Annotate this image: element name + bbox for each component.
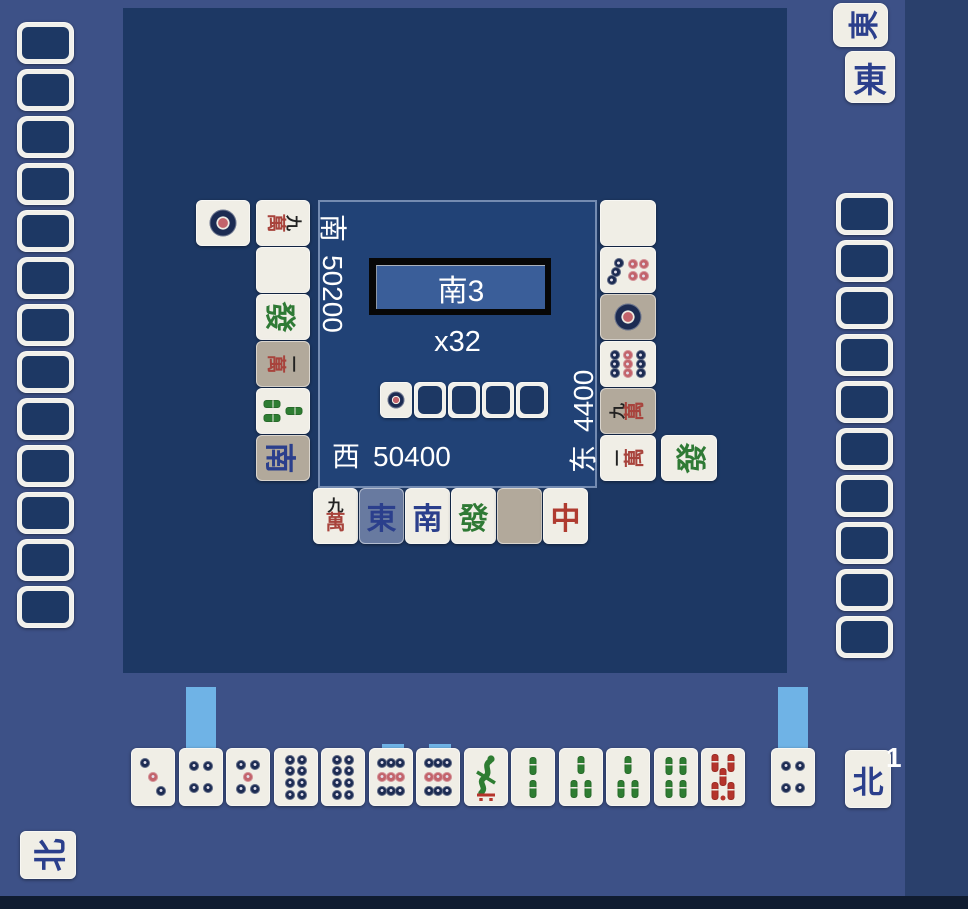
tile-face: 九萬 xyxy=(317,492,354,540)
tile-face xyxy=(604,204,652,242)
tile-1s[interactable] xyxy=(464,748,508,806)
tile-back-inner xyxy=(22,309,69,341)
tile-face xyxy=(200,204,246,242)
tile-face: 南 xyxy=(409,492,446,540)
tile-face xyxy=(230,752,266,802)
tile-face xyxy=(373,752,409,802)
tile-9m: 九萬 xyxy=(600,388,656,434)
tile-back xyxy=(17,116,74,158)
tile-8p[interactable] xyxy=(274,748,318,806)
tile-back xyxy=(836,334,893,376)
tile-back-inner xyxy=(841,386,888,418)
tile-face xyxy=(515,752,551,802)
tile-face xyxy=(604,345,652,383)
score-west: 西50400 xyxy=(332,435,451,475)
tile-back-inner xyxy=(22,544,69,576)
tile-back-inner xyxy=(22,403,69,435)
tile-S: 南 xyxy=(256,435,310,481)
tile-4s[interactable] xyxy=(654,748,698,806)
tile-back-inner xyxy=(22,591,69,623)
tile-back xyxy=(836,428,893,470)
seat-points: 50400 xyxy=(373,441,451,472)
tile-back xyxy=(836,616,893,658)
tile-back-inner xyxy=(520,386,544,414)
tile-3s[interactable] xyxy=(606,748,650,806)
tile-back-inner xyxy=(841,339,888,371)
tile-back xyxy=(836,381,893,423)
tile-face: 發 xyxy=(455,492,492,540)
tile-face xyxy=(183,752,219,802)
tile-1p xyxy=(380,382,412,418)
tile-back-inner xyxy=(22,27,69,59)
s-glyph: 南 xyxy=(413,494,443,538)
discard-hint-bar xyxy=(778,687,808,751)
tile-back xyxy=(17,304,74,346)
wall-count-label: x32 xyxy=(320,326,595,359)
e-glyph: 東 xyxy=(839,10,883,40)
tile-face: 一萬 xyxy=(260,345,306,383)
right-side-panel xyxy=(905,0,968,909)
tile-N: 北 xyxy=(20,831,76,879)
tile-face xyxy=(610,752,646,802)
e-glyph: 東 xyxy=(853,53,887,102)
nuki-count-label: 1 xyxy=(886,742,902,774)
tile-face: 東 xyxy=(837,7,884,43)
tile-face xyxy=(563,752,599,802)
tile-1m: 一萬 xyxy=(600,435,656,481)
tile-back-inner xyxy=(841,292,888,324)
tile-back-inner xyxy=(418,386,442,414)
tile-face: 一萬 xyxy=(604,439,652,477)
tile-face xyxy=(775,752,811,802)
game-screen: 南50200 南3 x32 西50400 东4400 九萬發一萬南 九萬一萬發 … xyxy=(0,0,968,909)
tile-face xyxy=(501,492,538,540)
tile-back-inner xyxy=(22,356,69,388)
seat-points: 4400 xyxy=(568,370,599,432)
g-glyph: 發 xyxy=(667,443,712,474)
tile-3s xyxy=(256,388,310,434)
g-glyph: 發 xyxy=(459,494,489,538)
tile-back xyxy=(17,257,74,299)
tile-8p[interactable] xyxy=(321,748,365,806)
tile-face xyxy=(278,752,314,802)
tile-4p[interactable] xyxy=(771,748,815,806)
tile-E: 東 xyxy=(845,51,895,103)
tile-back-inner xyxy=(841,527,888,559)
tile-back-inner xyxy=(22,215,69,247)
tile-face xyxy=(260,392,306,430)
tile-back xyxy=(448,382,480,418)
tile-back xyxy=(836,569,893,611)
tile-back-inner xyxy=(841,433,888,465)
round-label: 南3 xyxy=(438,266,485,310)
tile-back xyxy=(414,382,446,418)
tile-back-inner xyxy=(841,621,888,653)
tile-face xyxy=(384,386,408,414)
tile-back-inner xyxy=(22,121,69,153)
tile-face: 北 xyxy=(24,835,72,875)
tile-0s[interactable] xyxy=(701,748,745,806)
tile-9m: 九萬 xyxy=(313,488,358,544)
tile-S: 南 xyxy=(405,488,450,544)
tile-face xyxy=(604,251,652,289)
tile-5p[interactable] xyxy=(226,748,270,806)
tile-Wh xyxy=(497,488,542,544)
tile-back-inner xyxy=(22,497,69,529)
tile-back xyxy=(836,287,893,329)
tile-back xyxy=(836,193,893,235)
tile-4p[interactable] xyxy=(179,748,223,806)
tile-face xyxy=(420,752,456,802)
tile-back-inner xyxy=(22,74,69,106)
tile-9p[interactable] xyxy=(369,748,413,806)
seat-label: 南 xyxy=(317,214,348,242)
tile-back xyxy=(836,522,893,564)
tile-face: 九萬 xyxy=(260,204,306,242)
tile-back xyxy=(836,240,893,282)
seat-points: 50200 xyxy=(317,255,348,333)
center-info-panel: 南50200 南3 x32 西50400 东4400 xyxy=(318,200,597,488)
tile-7p xyxy=(600,247,656,293)
tile-back xyxy=(17,163,74,205)
tile-9m: 九萬 xyxy=(256,200,310,246)
tile-face xyxy=(705,752,741,802)
tile-face xyxy=(658,752,694,802)
tile-back xyxy=(17,586,74,628)
tile-face xyxy=(135,752,171,802)
tile-face xyxy=(604,298,652,336)
tile-face xyxy=(260,251,306,289)
tile-G: 發 xyxy=(256,294,310,340)
tile-back-inner xyxy=(841,480,888,512)
tile-face xyxy=(325,752,361,802)
tile-back-inner xyxy=(841,198,888,230)
tile-3p[interactable] xyxy=(131,748,175,806)
tile-back xyxy=(516,382,548,418)
tile-1p xyxy=(600,294,656,340)
tile-G: 發 xyxy=(451,488,496,544)
tile-back-inner xyxy=(22,262,69,294)
tile-back-inner xyxy=(22,450,69,482)
tile-back xyxy=(836,475,893,517)
tile-face: 南 xyxy=(260,439,306,477)
r-glyph: 中 xyxy=(551,494,581,538)
tile-face: 發 xyxy=(260,298,306,336)
n-glyph: 北 xyxy=(853,757,884,802)
tile-back xyxy=(17,539,74,581)
tile-back-inner xyxy=(486,386,510,414)
tile-9p[interactable] xyxy=(416,748,460,806)
tile-N: 北 xyxy=(845,750,891,808)
g-glyph: 發 xyxy=(261,302,306,333)
tile-E: 東 xyxy=(833,3,888,47)
discard-hint-bar xyxy=(186,687,216,751)
tile-9p xyxy=(600,341,656,387)
tile-back xyxy=(17,210,74,252)
tile-back xyxy=(17,22,74,64)
tile-back-inner xyxy=(841,574,888,606)
tile-1p xyxy=(196,200,250,246)
n-glyph: 北 xyxy=(24,839,72,872)
tile-back-inner xyxy=(452,386,476,414)
tile-back xyxy=(17,351,74,393)
tile-back xyxy=(17,445,74,487)
tile-R: 中 xyxy=(543,488,588,544)
tile-face: 發 xyxy=(665,439,713,477)
tile-back xyxy=(17,69,74,111)
round-indicator-button[interactable]: 南3 xyxy=(369,258,551,315)
tile-Wh xyxy=(600,200,656,246)
tile-face: 東 xyxy=(363,492,400,540)
bottom-bar xyxy=(0,896,968,909)
tile-back xyxy=(17,492,74,534)
tile-G: 發 xyxy=(661,435,717,481)
tile-2s[interactable] xyxy=(511,748,555,806)
seat-label: 东 xyxy=(568,445,599,473)
tile-E: 東 xyxy=(359,488,404,544)
seat-label: 西 xyxy=(332,441,360,472)
tile-back-inner xyxy=(841,245,888,277)
tile-Wh xyxy=(256,247,310,293)
s-glyph: 南 xyxy=(261,443,306,474)
score-east: 东4400 xyxy=(562,323,592,473)
tile-3s[interactable] xyxy=(559,748,603,806)
tile-back xyxy=(482,382,514,418)
e-glyph: 東 xyxy=(367,494,397,538)
tile-face: 東 xyxy=(849,55,891,99)
tile-face: 中 xyxy=(547,492,584,540)
tile-face: 北 xyxy=(849,754,887,804)
tile-1m: 一萬 xyxy=(256,341,310,387)
tile-face xyxy=(468,752,504,802)
tile-back xyxy=(17,398,74,440)
tile-face: 九萬 xyxy=(604,392,652,430)
1sou-bird-icon xyxy=(468,752,504,802)
tile-back-inner xyxy=(22,168,69,200)
